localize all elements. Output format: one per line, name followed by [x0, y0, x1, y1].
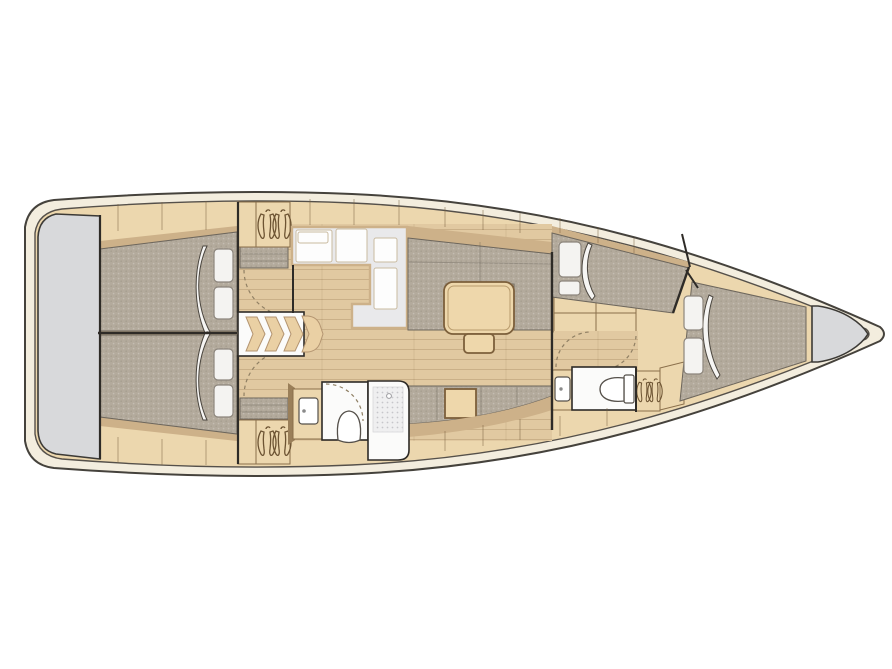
stove — [374, 268, 397, 309]
faucet-dot — [302, 409, 306, 413]
pillow-icon — [684, 296, 703, 330]
pillow-icon — [559, 242, 581, 277]
bench-table-insert — [445, 389, 476, 418]
passage-floor — [554, 331, 638, 370]
toilet-tank — [624, 375, 634, 403]
stove — [374, 238, 397, 262]
worktop-insert — [336, 229, 367, 262]
wardrobe — [238, 420, 291, 464]
floorplan-canvas — [0, 0, 892, 669]
cabinet — [660, 362, 684, 410]
pillow-icon — [684, 338, 703, 374]
drain-dot — [387, 394, 392, 399]
pillow-icon — [214, 349, 233, 380]
bench-seat — [240, 398, 288, 419]
pillow-icon — [214, 249, 233, 282]
pillow-icon — [559, 281, 580, 295]
companionway-steps — [238, 312, 323, 356]
pillow-icon — [214, 287, 233, 319]
forward-head — [552, 367, 636, 410]
sink-icon — [299, 398, 318, 424]
pillow-icon — [214, 385, 233, 417]
yacht-floorplan — [0, 0, 892, 669]
wardrobe — [238, 202, 291, 247]
sink-cover — [298, 232, 328, 243]
faucet-dot — [559, 387, 562, 390]
stern-locker — [38, 214, 100, 459]
bench-seat — [240, 247, 288, 268]
toilet-icon — [337, 411, 360, 443]
toilet-icon — [600, 378, 624, 402]
